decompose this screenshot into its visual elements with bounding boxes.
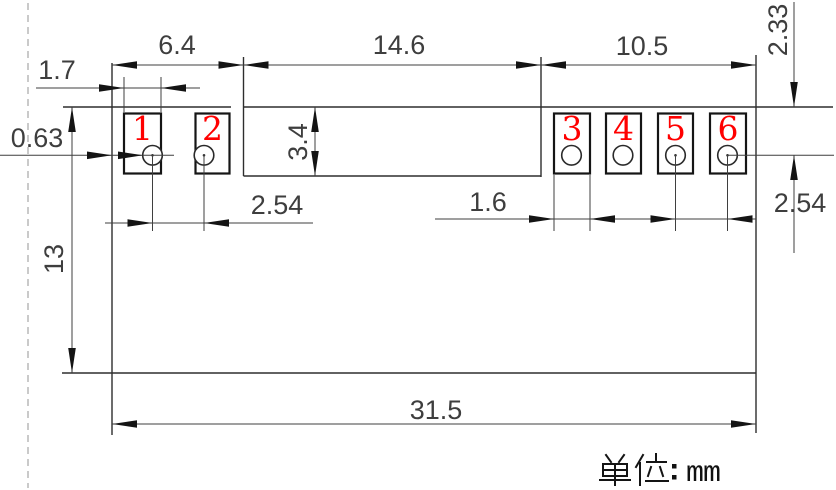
dim-left-pad-width: 1.7 xyxy=(36,55,200,112)
dim-left-section-width: 6.4 xyxy=(112,30,244,69)
dim-3.4-label: 3.4 xyxy=(283,123,313,161)
pad-4: 4 xyxy=(606,109,641,174)
pad-4-hole xyxy=(613,146,633,166)
dim-31.5-label: 31.5 xyxy=(410,395,463,425)
unit-label-cjk-wei xyxy=(636,454,668,485)
dim-14.6-label: 14.6 xyxy=(373,30,426,60)
pad-1: 1 xyxy=(124,109,162,174)
dim-6.4-label: 6.4 xyxy=(158,30,196,60)
pad-2: 2 xyxy=(194,109,229,174)
unit-note: mm xyxy=(600,454,720,490)
pad-4-number: 4 xyxy=(613,109,634,148)
dim-1.6-label: 1.6 xyxy=(469,187,507,217)
dim-10.5-label: 10.5 xyxy=(616,31,669,61)
dim-13-label: 13 xyxy=(39,244,69,274)
unit-label-colon xyxy=(672,464,677,480)
pad-1-number: 1 xyxy=(132,109,153,148)
unit-label-cjk-dan xyxy=(600,455,630,485)
unit-value-text: mm xyxy=(686,457,720,490)
pad-3: 3 xyxy=(554,109,590,174)
dim-0.63-label: 0.63 xyxy=(11,123,64,153)
dim-middle-height: 3.4 xyxy=(283,107,319,176)
pads: 1 2 3 4 5 xyxy=(124,109,746,174)
technical-drawing: 1 2 3 4 5 xyxy=(0,0,836,490)
dim-total-width: 31.5 xyxy=(112,395,756,428)
dim-middle-section-width: 14.6 xyxy=(244,30,542,69)
dim-2.33-label: 2.33 xyxy=(763,4,793,57)
pad-6-number: 6 xyxy=(718,109,739,148)
dim-2.54-right-label: 2.54 xyxy=(774,188,827,218)
dim-2.54-left-label: 2.54 xyxy=(251,190,304,220)
pad-5-number: 5 xyxy=(665,109,686,148)
pad-2-number: 2 xyxy=(202,109,223,148)
drawing-canvas: 1 2 3 4 5 xyxy=(0,0,836,490)
pad-3-hole xyxy=(562,146,582,166)
pad-3-number: 3 xyxy=(562,109,583,148)
dim-1.7-label: 1.7 xyxy=(38,55,76,85)
dim-right-section-width: 10.5 xyxy=(541,31,756,69)
